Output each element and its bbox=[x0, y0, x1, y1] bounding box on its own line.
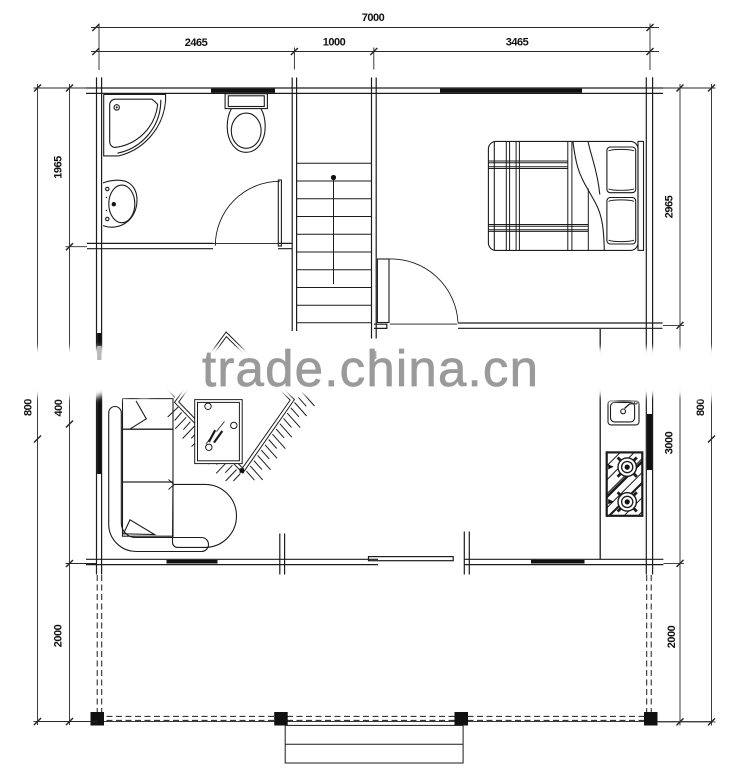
svg-text:www.: www. bbox=[539, 337, 725, 417]
svg-text:2000: 2000 bbox=[53, 624, 65, 647]
svg-text:2000: 2000 bbox=[666, 625, 678, 648]
svg-text:www: www bbox=[7, 340, 158, 412]
svg-text:2465: 2465 bbox=[185, 37, 208, 49]
svg-text:3465: 3465 bbox=[506, 37, 529, 49]
svg-text:3000: 3000 bbox=[664, 431, 676, 454]
svg-text:7000: 7000 bbox=[362, 12, 385, 24]
svg-text:trade.china.cn: trade.china.cn bbox=[202, 340, 539, 397]
svg-text:2965: 2965 bbox=[664, 195, 676, 218]
svg-text:1965: 1965 bbox=[53, 156, 65, 179]
svg-text:1000: 1000 bbox=[323, 37, 346, 49]
